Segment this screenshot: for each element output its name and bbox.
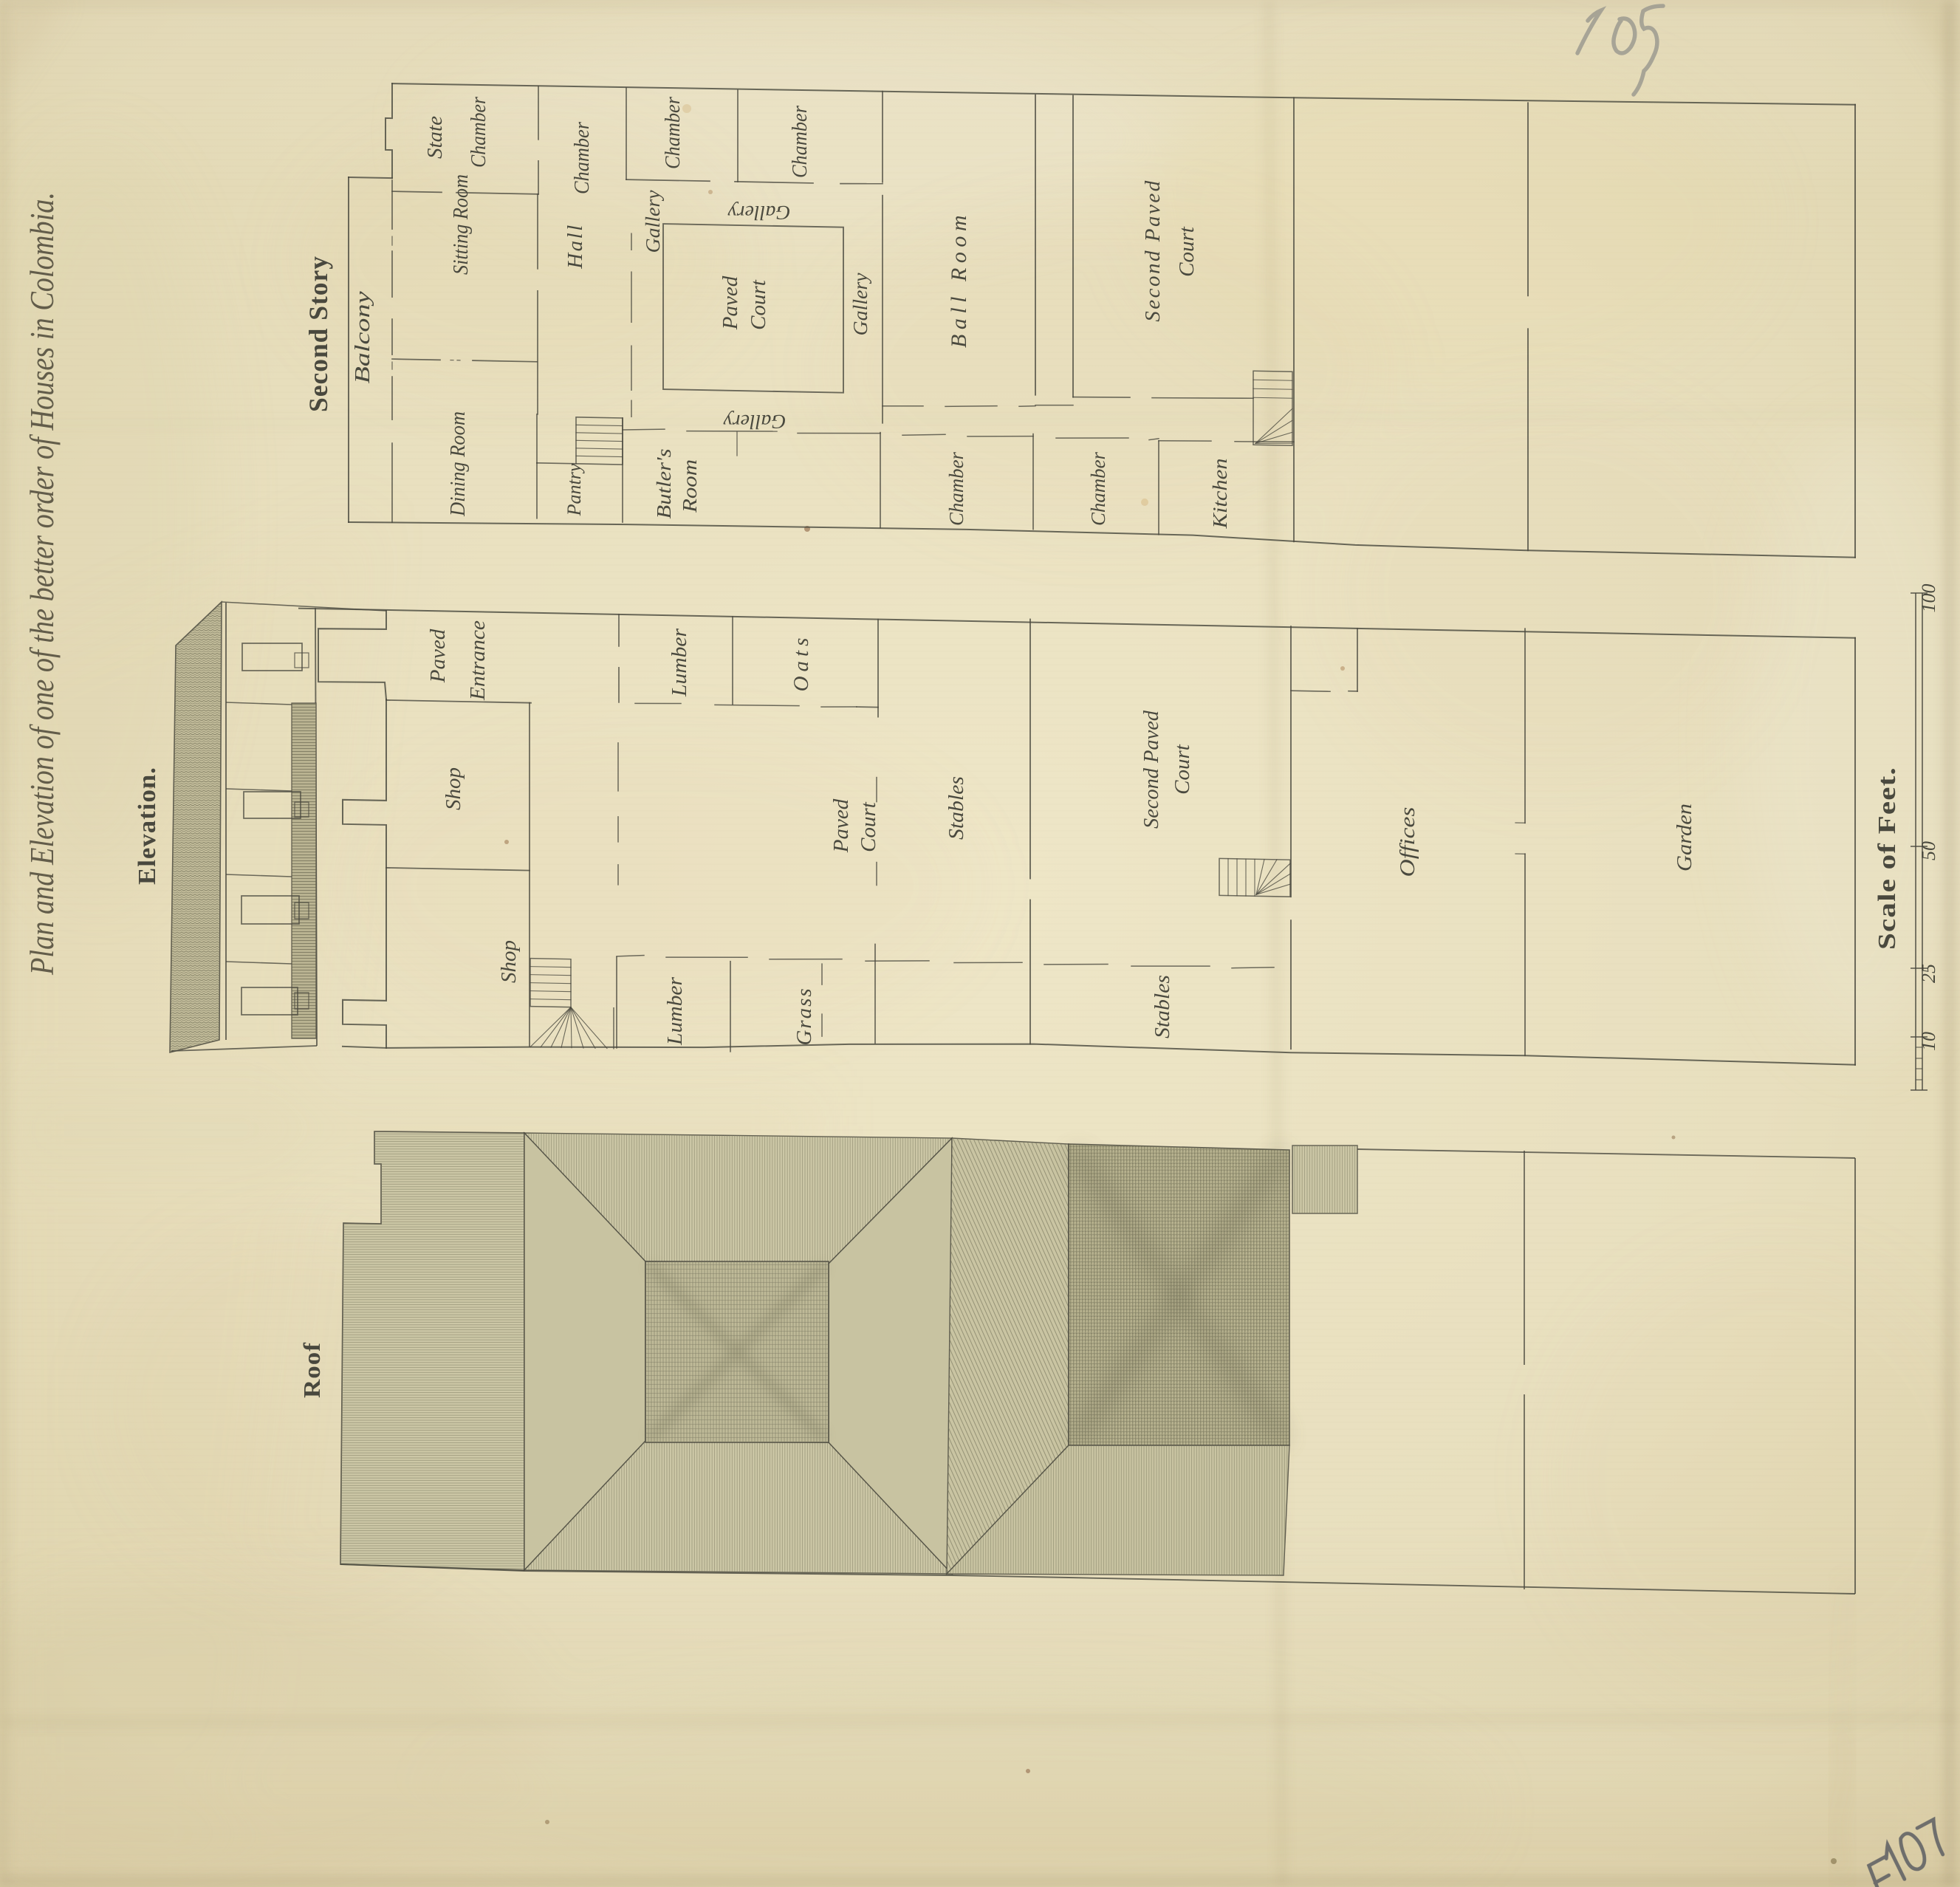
svg-text:Lumber: Lumber (663, 976, 687, 1046)
svg-text:Court: Court (1175, 226, 1199, 277)
svg-text:Sitting Room: Sitting Room (449, 174, 473, 275)
svg-text:Court: Court (1171, 744, 1194, 795)
svg-text:Gallery: Gallery (727, 202, 790, 224)
svg-text:Second Paved: Second Paved (1140, 710, 1163, 829)
svg-text:Hall: Hall (563, 223, 587, 270)
svg-text:Paved: Paved (719, 275, 742, 330)
svg-text:Paved: Paved (829, 798, 853, 853)
svg-text:State: State (423, 116, 447, 159)
svg-text:Offices: Offices (1396, 807, 1419, 877)
svg-text:Shop: Shop (442, 767, 465, 810)
svg-text:Court: Court (747, 279, 770, 330)
svg-text:Kitchen: Kitchen (1209, 459, 1231, 530)
svg-text:Stables: Stables (945, 776, 968, 840)
svg-text:Court: Court (857, 801, 880, 852)
svg-text:Gallery: Gallery (642, 190, 664, 253)
svg-text:Second Story: Second Story (304, 256, 333, 412)
svg-text:Scale of Feet.: Scale of Feet. (1874, 767, 1901, 950)
svg-text:25: 25 (1918, 964, 1939, 983)
svg-text:10: 10 (1918, 1032, 1939, 1051)
svg-text:Chamber: Chamber (570, 121, 594, 194)
svg-text:Chamber: Chamber (661, 96, 685, 169)
svg-text:Lumber: Lumber (668, 628, 691, 697)
svg-text:Grass: Grass (792, 987, 816, 1045)
svg-text:Balcony: Balcony (351, 291, 374, 383)
svg-text:Roof: Roof (298, 1342, 325, 1398)
svg-text:Garden: Garden (1673, 804, 1696, 871)
svg-text:Oats: Oats (789, 634, 813, 692)
svg-text:Gallery: Gallery (849, 273, 871, 335)
svg-text:Butler's: Butler's (653, 449, 675, 519)
svg-text:Paved: Paved (426, 629, 450, 683)
svg-text:Pantry: Pantry (563, 463, 585, 516)
svg-text:Stables: Stables (1151, 975, 1174, 1038)
svg-text:Ball Room: Ball Room (947, 210, 971, 348)
svg-text:Shop: Shop (497, 940, 521, 983)
svg-text:Chamber: Chamber (1087, 452, 1109, 526)
svg-text:Chamber: Chamber (467, 96, 490, 168)
svg-text:50: 50 (1918, 841, 1939, 860)
svg-text:Dining Room: Dining Room (446, 411, 470, 517)
svg-text:Gallery: Gallery (723, 411, 786, 433)
svg-text:Chamber: Chamber (788, 105, 812, 178)
svg-text:100: 100 (1918, 584, 1939, 613)
svg-text:Chamber: Chamber (945, 452, 967, 526)
svg-text:Plan and Elevation of one of t: Plan and Elevation of one of the better … (23, 192, 61, 976)
svg-text:Room: Room (679, 459, 701, 513)
svg-text:Elevation.: Elevation. (134, 767, 161, 885)
svg-text:Entrance: Entrance (466, 620, 490, 701)
svg-text:Second Paved: Second Paved (1141, 179, 1165, 321)
